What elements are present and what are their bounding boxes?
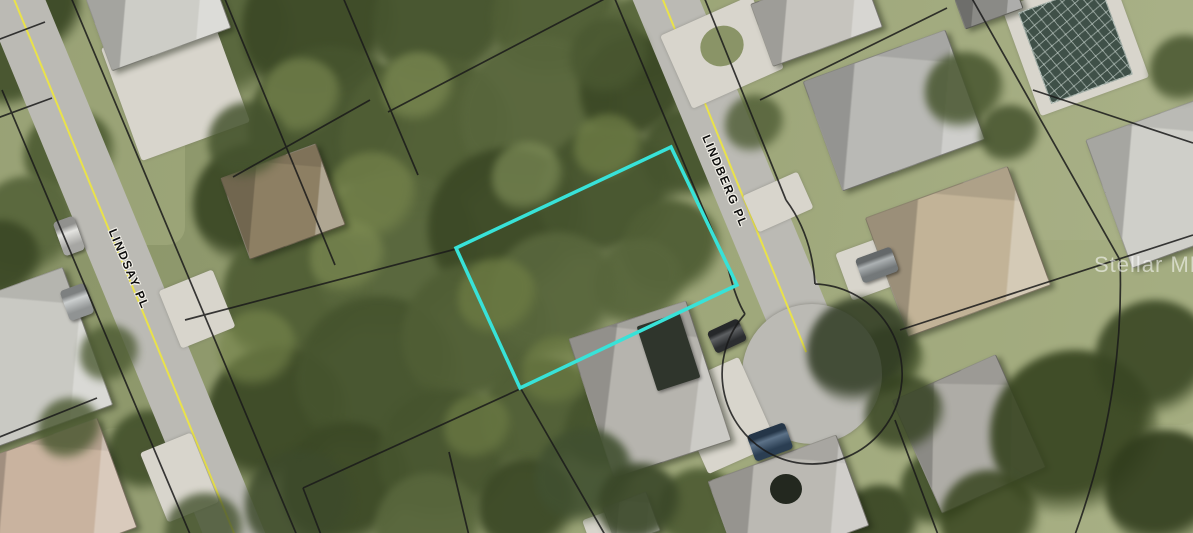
tree-canopy	[458, 258, 538, 338]
tree-canopy	[980, 105, 1040, 165]
tree-canopy	[38, 398, 102, 462]
dark-pool-feature	[770, 474, 802, 504]
aerial-map-image: LINDBERG PL LINDSAY PL Stellar MLS	[0, 0, 1193, 533]
tree-canopy	[492, 142, 564, 214]
tree-canopy	[444, 394, 512, 462]
tree-canopy	[80, 325, 140, 385]
stellar-mls-watermark: Stellar MLS	[1094, 252, 1193, 278]
tree-canopy	[725, 95, 785, 155]
tree-canopy	[208, 102, 288, 182]
tree-canopy	[574, 114, 642, 182]
tree-canopy	[382, 52, 454, 124]
tree-canopy	[598, 463, 682, 533]
tree-canopy	[570, 18, 650, 98]
tree-canopy	[865, 375, 945, 455]
